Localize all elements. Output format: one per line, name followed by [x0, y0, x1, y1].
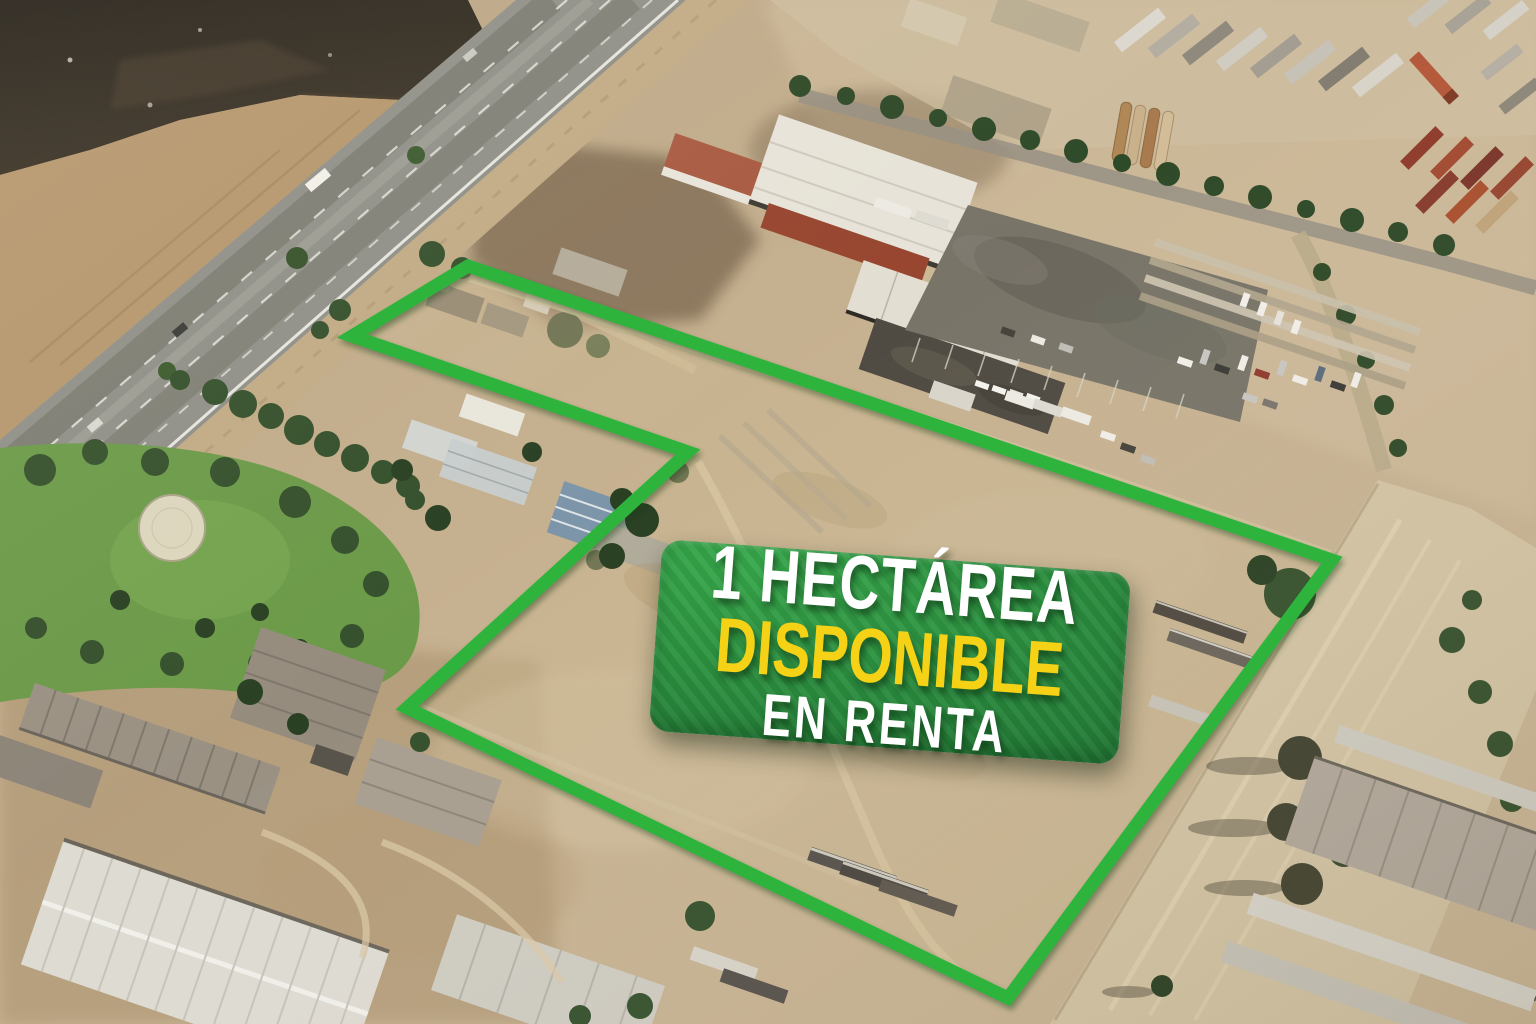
photo-haze: [0, 0, 1536, 1024]
aerial-listing-image: 1 HECTÁREA DISPONIBLE EN RENTA: [0, 0, 1536, 1024]
aerial-photo: [0, 0, 1536, 1024]
listing-badge: 1 HECTÁREA DISPONIBLE EN RENTA: [649, 539, 1132, 765]
